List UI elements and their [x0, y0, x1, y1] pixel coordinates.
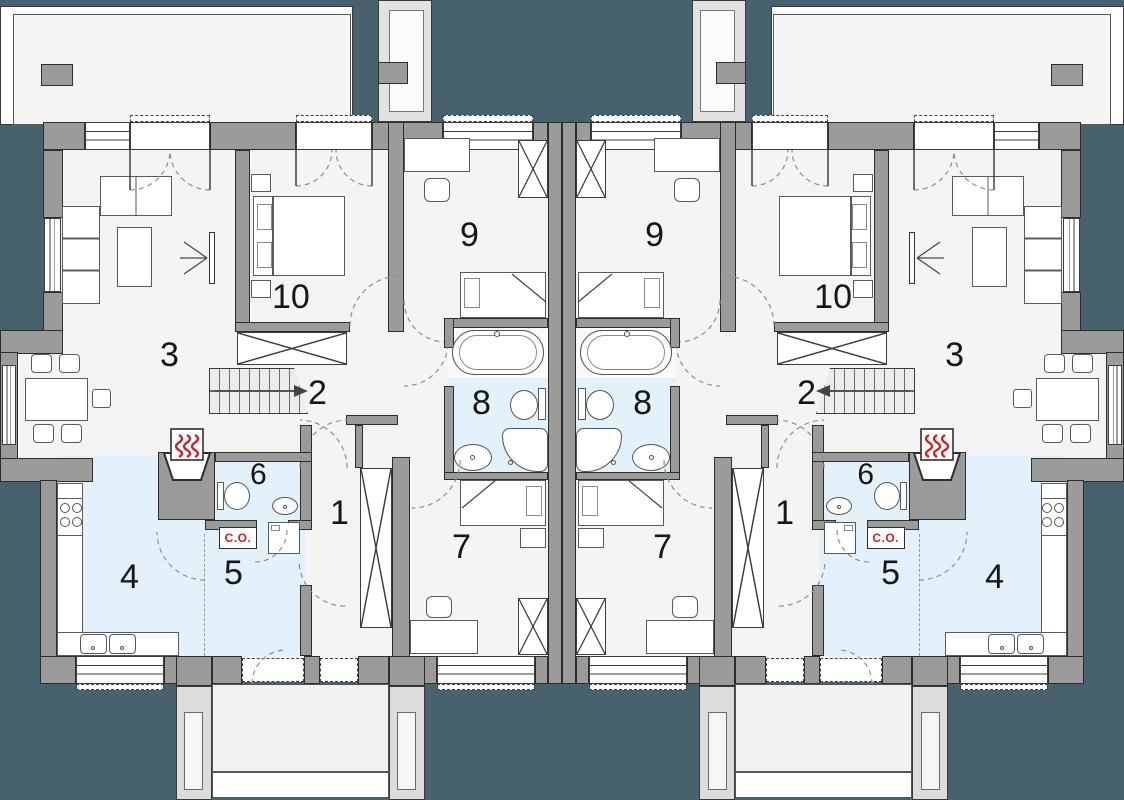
wall — [392, 457, 410, 657]
chair — [1042, 424, 1063, 443]
burner — [1054, 517, 1064, 527]
wall — [726, 415, 778, 425]
wall — [212, 656, 242, 684]
porch-jamb — [699, 656, 735, 686]
burner — [72, 503, 82, 513]
opening-dash — [76, 684, 164, 690]
wall — [874, 150, 889, 332]
floor-plan: C.O. — [0, 0, 1124, 800]
sofa-two-seat — [952, 176, 1024, 216]
porch-column-inner — [921, 712, 940, 790]
porch-floor — [212, 684, 389, 772]
sink-drain — [1000, 646, 1004, 650]
chair — [1072, 354, 1093, 373]
wall — [882, 656, 912, 684]
dining-table — [1036, 378, 1099, 421]
party-wall — [548, 122, 562, 684]
opening-dash — [591, 115, 681, 122]
wall — [535, 656, 548, 684]
room-label-hallway: 1 — [775, 496, 794, 530]
wall — [774, 322, 889, 332]
co-boiler-label: C.O. — [219, 527, 257, 549]
window — [85, 122, 130, 150]
balcony-door-opening — [130, 122, 210, 150]
faucet — [624, 331, 630, 337]
bathtub-inner — [587, 335, 665, 370]
window — [76, 656, 164, 684]
wall — [444, 472, 548, 480]
dining-table — [25, 378, 88, 421]
heater-icon — [158, 426, 216, 486]
coffee-table — [117, 227, 152, 287]
desk-chair — [424, 178, 450, 202]
desk — [410, 620, 478, 654]
burner — [1042, 517, 1052, 527]
pillow — [257, 204, 272, 230]
desk — [654, 138, 720, 172]
pillow — [257, 242, 272, 268]
wall — [40, 656, 76, 684]
desk-chair — [426, 596, 452, 618]
shower-drain — [508, 460, 513, 465]
wall — [1039, 122, 1081, 150]
wall — [828, 122, 914, 150]
wall — [1048, 656, 1084, 684]
chair — [59, 354, 80, 373]
nightstand — [520, 528, 546, 548]
opening-dash — [960, 684, 1048, 690]
side-chair — [92, 389, 111, 408]
room-label-kitchen: 4 — [120, 560, 139, 594]
window — [2, 365, 16, 445]
porch-jamb — [912, 656, 948, 686]
room-label-living: 3 — [945, 338, 964, 372]
entry-sidelight — [766, 658, 804, 682]
stairs — [816, 368, 915, 414]
room-label-wc: 6 — [857, 460, 874, 490]
sink-basin — [80, 634, 107, 654]
tv — [209, 232, 215, 284]
burner — [1042, 503, 1052, 513]
wall — [1067, 480, 1084, 658]
wall — [444, 386, 454, 480]
pillow — [464, 278, 480, 308]
wall — [720, 122, 736, 332]
heater-icon — [908, 426, 966, 486]
wall — [812, 585, 824, 656]
porch-jamb — [389, 656, 425, 686]
washing-machine-detail — [271, 525, 280, 531]
window — [994, 122, 1039, 150]
opening-dash — [296, 115, 372, 122]
dormer-window — [700, 10, 735, 112]
wall — [43, 122, 85, 150]
opening-dash — [437, 684, 535, 690]
desk-chair — [672, 596, 698, 618]
wall — [714, 457, 732, 657]
chimney-block — [1051, 64, 1083, 86]
room-label-kitchen: 4 — [985, 560, 1004, 594]
balcony-door-opening — [914, 122, 994, 150]
wall — [300, 425, 312, 525]
unit-right: C.O. — [562, 0, 1124, 800]
window — [1108, 365, 1122, 445]
unit-left: C.O. — [0, 0, 562, 800]
wall — [235, 322, 350, 332]
pillow — [582, 486, 598, 516]
nightstand — [578, 528, 604, 548]
burner — [60, 517, 70, 527]
room-label-wc: 6 — [250, 460, 267, 490]
sink-drain — [1029, 646, 1033, 650]
wall — [0, 458, 93, 482]
wall — [1061, 292, 1081, 332]
window — [589, 656, 687, 684]
faucet — [494, 331, 500, 337]
desk-chair — [674, 178, 700, 202]
sink-drain — [837, 505, 841, 509]
toilet-tank — [538, 388, 546, 420]
porch-column-inner — [397, 712, 416, 790]
coffee-table — [972, 227, 1007, 287]
chimney-block — [378, 62, 408, 84]
room-label-bathroom: 8 — [633, 386, 652, 420]
opening-dash — [130, 115, 210, 122]
sink-basin — [1017, 634, 1044, 654]
co-text: C.O. — [873, 531, 900, 545]
chair — [61, 424, 82, 443]
sink-basin — [988, 634, 1015, 654]
toilet-tank — [900, 482, 907, 510]
sink-drain — [91, 646, 95, 650]
wall — [804, 656, 820, 684]
room-label-bathroom: 8 — [472, 386, 491, 420]
floor-transition — [204, 534, 206, 656]
room-label-bedroom: 10 — [814, 280, 852, 314]
wall — [0, 330, 63, 354]
wall — [576, 656, 589, 684]
wall — [210, 122, 296, 150]
window — [1063, 218, 1080, 292]
wall — [576, 472, 680, 480]
wall — [43, 150, 63, 218]
pillow — [526, 486, 542, 516]
wardrobe — [360, 468, 392, 628]
wall — [444, 318, 548, 328]
sink-drain — [470, 455, 475, 460]
window — [44, 218, 61, 292]
wall — [358, 656, 389, 684]
balcony-door-opening — [296, 122, 372, 150]
room-label-hall5: 5 — [224, 556, 243, 590]
party-wall — [562, 122, 576, 684]
room-label-room9: 9 — [645, 218, 664, 252]
opening-dash — [589, 684, 687, 690]
burner — [60, 503, 70, 513]
toilet — [586, 390, 614, 420]
wall — [388, 122, 404, 332]
wall — [812, 425, 824, 525]
dormer-window — [389, 10, 424, 112]
burner — [1054, 503, 1064, 513]
wardrobe — [518, 140, 548, 198]
floor-transition — [918, 534, 920, 656]
toilet — [874, 482, 900, 510]
wardrobe — [518, 598, 548, 655]
wall — [40, 480, 57, 658]
wardrobe — [777, 332, 887, 365]
room-label-living: 3 — [160, 338, 179, 372]
porch-column-inner — [184, 712, 203, 790]
wardrobe — [732, 468, 764, 628]
toilet-tank — [578, 388, 586, 420]
tv — [909, 232, 915, 284]
wardrobe — [237, 332, 347, 365]
wall — [735, 656, 766, 684]
porch-floor — [735, 684, 912, 772]
side-chair — [1013, 389, 1032, 408]
co-text: C.O. — [225, 531, 252, 545]
pillow — [852, 242, 867, 268]
chair — [31, 354, 52, 373]
room-label-bedroom: 10 — [272, 280, 310, 314]
opening-dash — [914, 115, 994, 122]
porch-jamb — [176, 656, 212, 686]
wall — [346, 415, 398, 425]
toilet — [224, 482, 250, 510]
sofa-two-seat — [100, 176, 172, 216]
sofa-three-seat — [62, 206, 100, 304]
opening-dash — [443, 115, 533, 122]
wardrobe — [576, 140, 606, 198]
bathtub-inner — [459, 335, 537, 370]
room-label-stair-hall: 2 — [308, 376, 327, 410]
chair — [1044, 354, 1065, 373]
porch-column-inner — [708, 712, 727, 790]
wall — [1061, 330, 1124, 354]
desk — [404, 138, 470, 172]
porch-step — [212, 772, 389, 798]
window — [437, 656, 535, 684]
sofa-three-seat — [1024, 206, 1062, 304]
desk — [646, 620, 714, 654]
sink-basin — [109, 634, 136, 654]
sink-drain — [120, 646, 124, 650]
washing-machine-detail — [844, 525, 853, 531]
wall — [1031, 458, 1124, 482]
sink-drain — [283, 505, 287, 509]
wall — [670, 386, 680, 480]
shower-drain — [611, 460, 616, 465]
room-label-room7: 7 — [653, 530, 672, 564]
room-label-hall5: 5 — [881, 556, 900, 590]
wall — [43, 292, 63, 332]
wall — [235, 150, 250, 332]
room-label-stair-hall: 2 — [797, 376, 816, 410]
stairs — [209, 368, 308, 414]
toilet-tank — [217, 482, 224, 510]
room-label-hallway: 1 — [330, 496, 349, 530]
chimney-block — [716, 62, 746, 84]
balcony-door-opening — [752, 122, 828, 150]
window — [960, 656, 1048, 684]
chair — [1070, 424, 1091, 443]
wall — [300, 585, 312, 656]
wall — [670, 318, 680, 348]
wardrobe — [576, 598, 606, 655]
nightstand — [853, 174, 873, 192]
wall — [304, 656, 320, 684]
entry-door-opening — [820, 658, 882, 682]
nightstand — [251, 174, 271, 192]
entry-sidelight — [320, 658, 358, 682]
pillow — [852, 204, 867, 230]
wall — [1061, 150, 1081, 218]
sink-drain — [649, 455, 654, 460]
co-boiler-label: C.O. — [867, 527, 905, 549]
burner — [72, 517, 82, 527]
porch-step — [735, 772, 912, 798]
nightstand — [251, 280, 271, 298]
wall — [576, 318, 680, 328]
room-label-room7: 7 — [452, 530, 471, 564]
pillow — [644, 278, 660, 308]
chimney-block — [41, 64, 73, 86]
entry-door-opening — [242, 658, 304, 682]
room-label-room9: 9 — [460, 218, 479, 252]
wall — [761, 425, 769, 468]
wall — [355, 425, 363, 468]
nightstand — [853, 280, 873, 298]
toilet — [510, 390, 538, 420]
opening-dash — [752, 115, 828, 122]
chair — [33, 424, 54, 443]
